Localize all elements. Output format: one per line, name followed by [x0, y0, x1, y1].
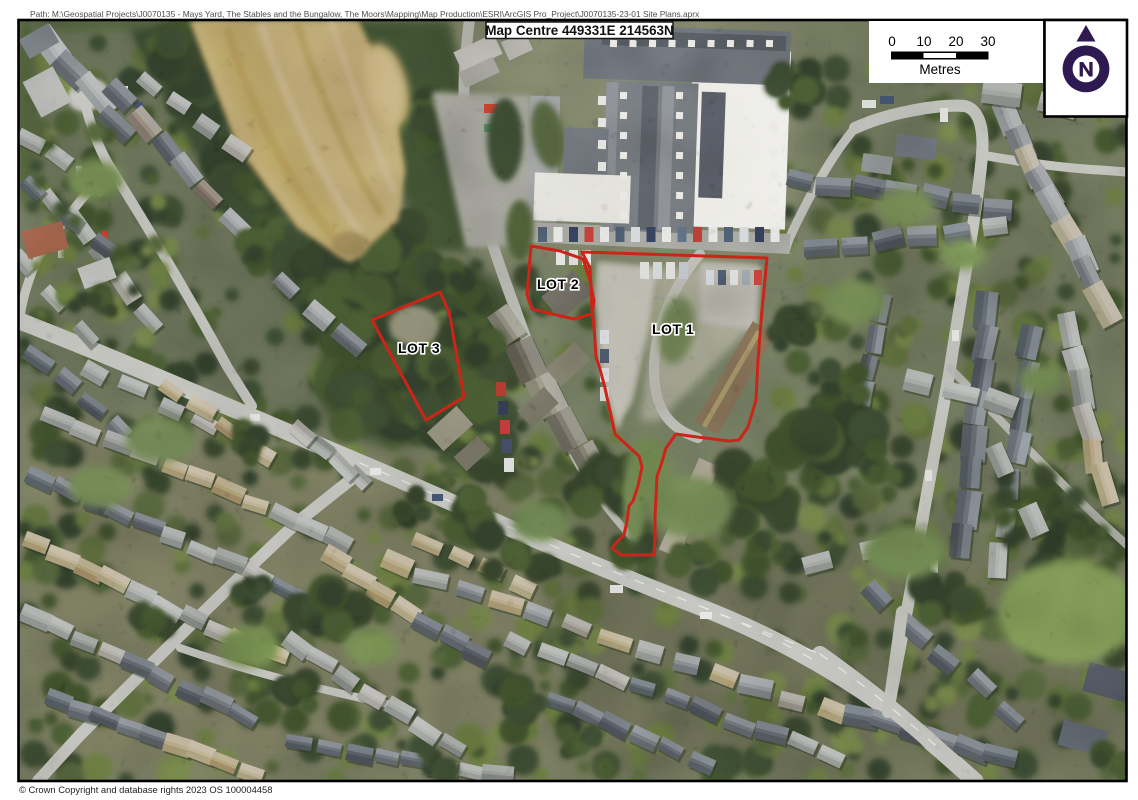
svg-text:30: 30: [980, 34, 995, 49]
svg-text:LOT 1: LOT 1: [652, 321, 694, 337]
svg-text:LOT 3: LOT 3: [398, 340, 440, 356]
svg-text:© Crown Copyright and database: © Crown Copyright and database rights 20…: [19, 784, 272, 795]
svg-text:LOT 2: LOT 2: [537, 276, 579, 292]
svg-text:10: 10: [916, 34, 931, 49]
svg-text:Metres: Metres: [919, 62, 961, 77]
svg-text:0: 0: [888, 34, 896, 49]
svg-text:Map Centre 449331E 214563N: Map Centre 449331E 214563N: [485, 23, 673, 38]
svg-text:20: 20: [948, 34, 963, 49]
svg-text:Path: M:\Geospatial Projects\J: Path: M:\Geospatial Projects\J0070135 - …: [30, 9, 700, 19]
